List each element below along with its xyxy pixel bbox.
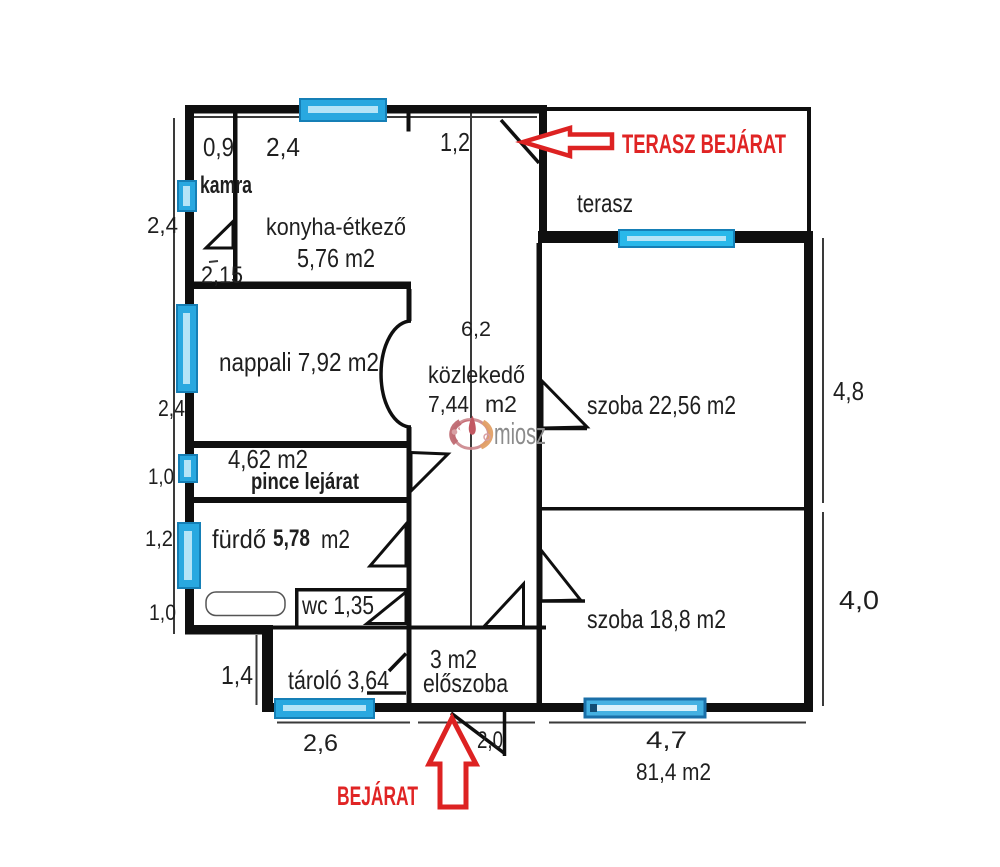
- svg-text:1,2: 1,2: [440, 127, 470, 157]
- svg-text:5,78: 5,78: [273, 525, 310, 552]
- svg-text:terasz: terasz: [577, 188, 633, 218]
- svg-text:TERASZ BEJÁRAT: TERASZ BEJÁRAT: [622, 128, 786, 159]
- svg-text:wc 1,35: wc 1,35: [301, 590, 374, 620]
- svg-text:0,9: 0,9: [203, 132, 234, 162]
- svg-text:81,4 m2: 81,4 m2: [636, 759, 711, 786]
- svg-text:pince lejárat: pince lejárat: [251, 468, 359, 494]
- svg-text:BEJÁRAT: BEJÁRAT: [337, 780, 418, 811]
- svg-text:fürdő: fürdő: [212, 524, 266, 554]
- svg-text:4,7: 4,7: [646, 727, 687, 754]
- svg-text:konyha-étkező: konyha-étkező: [266, 214, 406, 241]
- svg-text:2,4: 2,4: [147, 212, 178, 238]
- svg-text:2,0: 2,0: [477, 727, 503, 754]
- svg-text:kamra: kamra: [200, 172, 252, 199]
- svg-text:közlekedő: közlekedő: [428, 362, 525, 389]
- svg-text:nappali 7,92 m2: nappali 7,92 m2: [219, 347, 379, 377]
- svg-text:miosz: miosz: [494, 416, 546, 451]
- svg-text:tároló 3,64: tároló 3,64: [288, 665, 389, 695]
- svg-text:1,2: 1,2: [145, 526, 173, 551]
- svg-text:m2: m2: [321, 524, 350, 554]
- svg-text:5,76 m2: 5,76 m2: [297, 243, 375, 273]
- svg-text:1,0: 1,0: [148, 464, 174, 489]
- svg-text:szoba 22,56 m2: szoba 22,56 m2: [587, 390, 736, 420]
- svg-text:2,4: 2,4: [158, 395, 185, 421]
- svg-text:4,8: 4,8: [833, 376, 864, 406]
- svg-text:4,0: 4,0: [839, 585, 879, 615]
- svg-text:2,4: 2,4: [266, 132, 300, 162]
- svg-text:1,4: 1,4: [221, 660, 253, 690]
- svg-text:szoba 18,8 m2: szoba 18,8 m2: [587, 604, 726, 634]
- svg-text:6,2: 6,2: [461, 318, 491, 341]
- svg-text:1,0: 1,0: [149, 600, 176, 625]
- svg-text:2,6: 2,6: [303, 730, 338, 757]
- svg-text:2,15: 2,15: [201, 262, 243, 289]
- svg-text:előszoba: előszoba: [423, 668, 508, 698]
- svg-text:7,44: 7,44: [428, 391, 469, 417]
- svg-text:m2: m2: [485, 391, 517, 417]
